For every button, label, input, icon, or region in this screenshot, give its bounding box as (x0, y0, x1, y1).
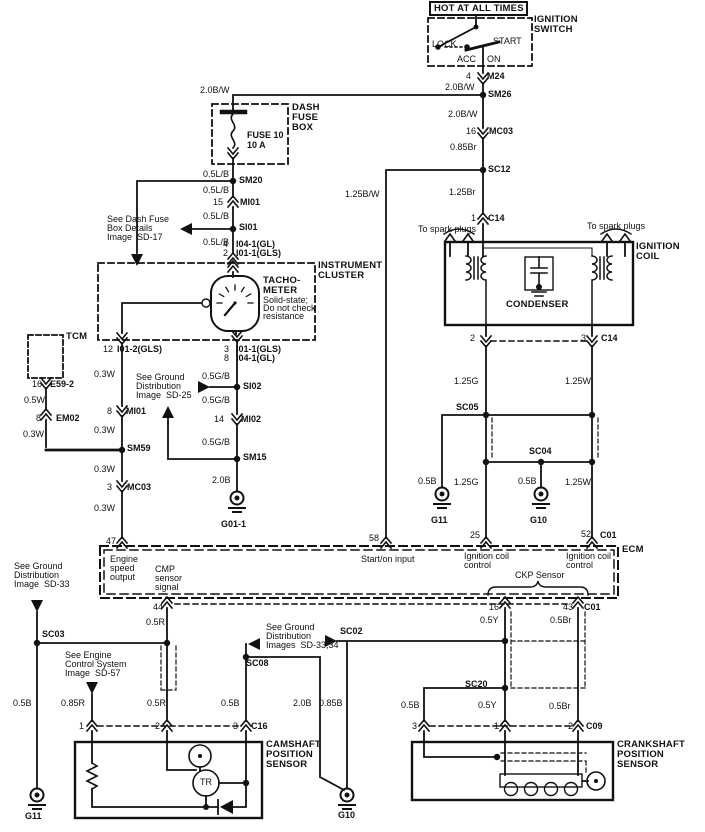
e59-pin-16: 16 (32, 380, 42, 389)
arrow-sm15 (162, 406, 174, 418)
ground-g11-b (29, 789, 45, 810)
sc05: SC05 (456, 403, 479, 412)
wire-03w-a: 0.3W (94, 370, 115, 379)
wire-05br-a: 0.5Br (550, 616, 572, 625)
mc03-b: MC03 (127, 483, 151, 492)
g11-b: G11 (25, 812, 42, 821)
switch-acc: ACC (457, 55, 476, 64)
sc12: SC12 (488, 165, 511, 174)
engine-speed-3: output (110, 573, 135, 582)
mi01-a: MI01 (240, 198, 260, 207)
wire-085b: 0.85B (319, 699, 343, 708)
c16: C16 (251, 722, 268, 731)
arrow-sc08 (248, 638, 260, 650)
ckp-pin-2: 2 (568, 722, 573, 731)
wiring-diagram-page: HOT AT ALL TIMESIGNITIONSWITCHLOCKSTARTA… (0, 0, 705, 832)
g11-a: G11 (431, 516, 448, 525)
cmp-signal-3: signal (155, 583, 179, 592)
tachometer-gauge (202, 276, 259, 331)
c01-a: C01 (600, 531, 617, 540)
cmp-pin-2: 2 (155, 722, 160, 731)
fuse-element (231, 114, 234, 148)
wire-05y-a: 0.5Y (480, 616, 499, 625)
ignition-switch-2: SWITCH (534, 25, 573, 35)
wire-125br: 1.25Br (449, 188, 476, 197)
ckp-brace (488, 581, 588, 595)
m24-pin-4: 4 (466, 72, 471, 81)
crankshaft-sensor-box (412, 742, 613, 800)
start-on-input: Start/on input (361, 555, 415, 564)
arrow-sd33 (31, 600, 43, 612)
transistor: TR (200, 778, 212, 787)
ckp-sensor-internals (500, 772, 605, 796)
sc08: SC08 (246, 659, 269, 668)
ignition-coil-2: COIL (636, 252, 660, 262)
crankshaft-3: SENSOR (617, 760, 658, 770)
wire-05gb-b: 0.5G/B (202, 396, 230, 405)
wire-05w: 0.5W (24, 396, 45, 405)
see-gd33-3: Image SD-33 (14, 580, 70, 589)
ign-coil-ctrl-1b: control (464, 561, 491, 570)
mc03-pin-3: 3 (107, 483, 112, 492)
ecm-pin-43: 43 (563, 603, 573, 612)
cluster-pin-8: 8 (224, 354, 229, 363)
ground-g10-b (339, 789, 355, 810)
mc03-pin-16: 16 (466, 127, 476, 136)
ground-g01-1 (229, 492, 245, 513)
wire-20b-a: 2.0B (212, 476, 231, 485)
fuse-10-amp: 10 A (247, 141, 266, 150)
camshaft-3: SENSOR (266, 760, 307, 770)
sm20: SM20 (239, 176, 263, 185)
wire-20bw-a: 2.0B/W (445, 83, 475, 92)
wire-085r: 0.85R (61, 699, 85, 708)
coil-pin-2: 2 (470, 334, 475, 343)
wire-125g-a: 1.25G (454, 377, 479, 386)
c01-b: C01 (584, 603, 601, 612)
see-gd25-3: Image SD-25 (136, 391, 192, 400)
coil-pin-3: 3 (581, 334, 586, 343)
wire-20bw-b: 2.0B/W (200, 86, 230, 95)
shield-dashes (161, 418, 598, 772)
cluster-i04-b: I04-1(GL) (236, 354, 275, 363)
to-spark-plugs-left: To spark plugs (418, 225, 476, 234)
arrow-sd57 (86, 682, 98, 694)
splice-dots (34, 25, 595, 811)
mi01-pin-8: 8 (107, 407, 112, 416)
mi01-pin-15: 15 (213, 198, 223, 207)
cmp-pin-3: 3 (233, 722, 238, 731)
mc03-a: MC03 (489, 127, 513, 136)
tcm: TCM (66, 332, 87, 342)
g01-1: G01-1 (221, 520, 246, 529)
m24: M24 (487, 72, 505, 81)
wire-20bw-c: 2.0B/W (448, 110, 478, 119)
switch-start: START (493, 37, 522, 46)
wire-03w-c: 0.3W (23, 430, 44, 439)
wire-05gb-a: 0.5G/B (202, 372, 230, 381)
wire-03w-d: 0.3W (94, 465, 115, 474)
tachometer-5: resistance (263, 312, 304, 321)
sc20: SC20 (465, 680, 488, 689)
mi02-pin-14: 14 (214, 415, 224, 424)
wire-125w-a: 1.25W (565, 377, 591, 386)
sc02: SC02 (340, 627, 363, 636)
hot-at-all-times: HOT AT ALL TIMES (434, 4, 524, 14)
wire-05lb-a: 0.5L/B (203, 170, 229, 179)
g10-a: G10 (530, 516, 547, 525)
switch-lock: LOCK (432, 40, 457, 49)
em02-pin-8: 8 (36, 414, 41, 423)
connectors (41, 73, 597, 731)
wire-05b-b: 0.5B (518, 477, 537, 486)
si02: SI02 (243, 382, 262, 391)
wire-125w-b: 1.25W (565, 478, 591, 487)
cluster-pin-2: 2 (223, 249, 228, 258)
wire-05gb-c: 0.5G/B (202, 438, 230, 447)
tcm-box (28, 335, 63, 378)
e59-2: E59-2 (50, 380, 74, 389)
em02: EM02 (56, 414, 80, 423)
wire-20b-b: 2.0B (293, 699, 312, 708)
c14-b: C14 (601, 334, 618, 343)
wire-05b-a: 0.5B (418, 477, 437, 486)
cluster-i01-a: I01-1(GLS) (236, 249, 281, 258)
wire-05r-a: 0.5R (146, 618, 165, 627)
wire-05b-c: 0.5B (13, 699, 32, 708)
see-dash-fuse-3: Image SD-17 (107, 233, 163, 242)
wire-05b-d: 0.5B (221, 699, 240, 708)
ign-coil-ctrl-2b: control (566, 561, 593, 570)
see-ecs-3: Image SD-57 (65, 669, 121, 678)
c14-pin-1: 1 (471, 214, 476, 223)
ckp-pin-3: 3 (412, 722, 417, 731)
sc04: SC04 (529, 447, 552, 456)
ecm-pin-52: 52 (581, 530, 591, 539)
condenser: CONDENSER (506, 300, 569, 310)
wire-05lb-b: 0.5L/B (203, 186, 229, 195)
g10-b: G10 (338, 811, 355, 820)
wire-03w-e: 0.3W (94, 504, 115, 513)
sm26: SM26 (488, 90, 512, 99)
cluster-i01-2: I01-2(GLS) (117, 345, 162, 354)
ground-g10-a (533, 488, 549, 509)
ecm-pin-58: 58 (369, 534, 379, 543)
wire-125bw: 1.25B/W (345, 190, 380, 199)
mi02: MI02 (241, 415, 261, 424)
wire-05lb-c: 0.5L/B (203, 212, 229, 221)
mi01-b: MI01 (126, 407, 146, 416)
wire-085br: 0.85Br (450, 143, 477, 152)
wiring-diagram-svg (0, 0, 705, 832)
see-gd3334-3: Images SD-33,34 (266, 641, 339, 650)
ecm-pin-47: 47 (106, 537, 116, 546)
wire-05b-e: 0.5B (401, 701, 420, 710)
ground-g11-a (434, 488, 450, 509)
cmp-pin-1: 1 (79, 722, 84, 731)
dash-fuse-box-3: BOX (292, 123, 313, 133)
ecm-pin-16: 16 (489, 603, 499, 612)
sm59: SM59 (127, 444, 151, 453)
arrow-sd25 (198, 381, 210, 393)
wire-125g-b: 1.25G (454, 478, 479, 487)
switch-on: ON (487, 55, 501, 64)
c09: C09 (586, 722, 603, 731)
arrow-sd17 (131, 254, 143, 266)
wire-03w-b: 0.3W (94, 426, 115, 435)
arrow-si01 (180, 223, 192, 235)
sm15: SM15 (243, 453, 267, 462)
ecm-pin-44: 44 (153, 603, 163, 612)
spark-plug-pins (445, 234, 630, 241)
wire-05r-b: 0.5R (147, 699, 166, 708)
instrument-cluster-2: CLUSTER (318, 271, 364, 281)
sc03: SC03 (42, 630, 65, 639)
wire-05br-b: 0.5Br (549, 702, 571, 711)
coil-primary-link (483, 248, 592, 256)
ckp-pin-1: 1 (494, 722, 499, 731)
si01: SI01 (239, 223, 258, 232)
ecm: ECM (622, 545, 644, 555)
wire-05y-b: 0.5Y (478, 701, 497, 710)
ckp-sensor: CKP Sensor (515, 571, 564, 580)
to-spark-plugs-right: To spark plugs (587, 222, 645, 231)
cluster-pin-12: 12 (103, 345, 113, 354)
ecm-pin-25: 25 (470, 531, 480, 540)
fuse-10: FUSE 10 (247, 131, 284, 140)
c14-a: C14 (488, 214, 505, 223)
